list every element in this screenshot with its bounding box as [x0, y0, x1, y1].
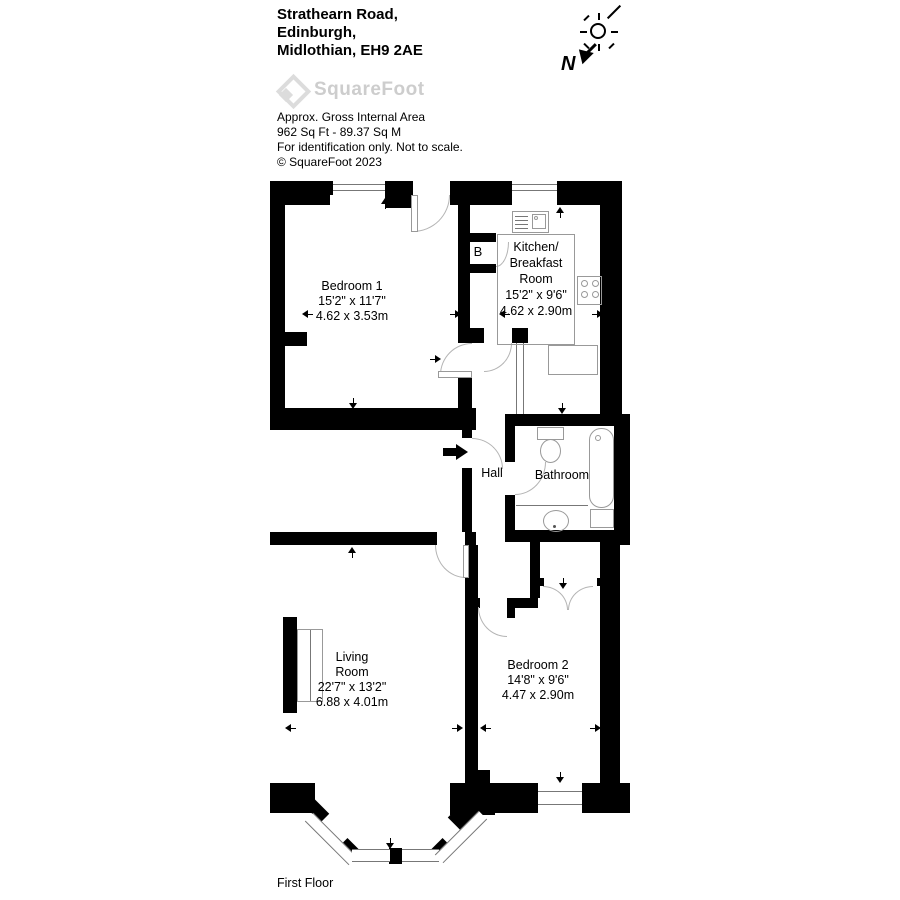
dimension-tick [559, 578, 569, 588]
wall-segment [465, 545, 478, 770]
tick-stem [486, 728, 491, 729]
room-label-kitchen: Kitchen/ Breakfast Room 15'2" x 9'6" 4.6… [491, 239, 581, 319]
room-label-living: Living Room 22'7" x 13'2" 6.88 x 4.01m [292, 650, 412, 710]
room-label-bathroom: Bathroom [522, 468, 602, 483]
kitchen-name-1: Kitchen/ [491, 239, 581, 255]
window-line [512, 190, 557, 191]
wall-segment [490, 783, 538, 813]
dimension-tick [480, 724, 490, 734]
door-leaf [438, 371, 472, 378]
floorplan-page: Strathearn Road, Edinburgh, Midlothian, … [0, 0, 900, 900]
dimension-tick [558, 403, 568, 413]
tick-triangle [559, 583, 567, 589]
tick-stem [560, 213, 561, 218]
hob-ring [581, 291, 588, 298]
bedroom2-dims-metric: 4.47 x 2.90m [478, 688, 598, 703]
bedroom2-dims-imperial: 14'8" x 9'6" [478, 673, 598, 688]
tick-stem [291, 728, 296, 729]
wall-segment [505, 426, 515, 462]
tick-stem [563, 578, 564, 583]
address-block: Strathearn Road, Edinburgh, Midlothian, … [277, 6, 423, 60]
tick-stem [353, 398, 354, 403]
tick-stem [352, 553, 353, 558]
tick-stem [385, 204, 386, 209]
compass-ray [607, 5, 621, 19]
sink-tap [534, 216, 538, 220]
wall-segment [538, 578, 544, 586]
room-label-bedroom1: Bedroom 1 15'2" x 11'7" 4.62 x 3.53m [292, 279, 412, 324]
wall-segment [507, 608, 515, 618]
tick-triangle [349, 403, 357, 409]
door-arc [472, 438, 503, 469]
window-line [523, 343, 524, 414]
hob-ring [581, 280, 588, 287]
kitchen-name-3: Room [491, 271, 581, 287]
tick-triangle [386, 843, 394, 849]
boiler-label: B [466, 244, 490, 259]
dimension-tick [450, 310, 460, 320]
door-leaf [411, 195, 418, 232]
kitchen-dims-imperial: 15'2" x 9'6" [491, 287, 581, 303]
window-opening [538, 784, 582, 812]
wall-segment [505, 530, 630, 542]
basin [543, 510, 569, 532]
living-dims-imperial: 22'7" x 13'2" [292, 680, 412, 695]
address-line-2: Edinburgh, [277, 24, 423, 42]
tick-triangle [435, 355, 441, 363]
door-arc [435, 545, 466, 578]
window-line [333, 184, 385, 185]
hall-name: Hall [462, 466, 522, 481]
tick-stem [560, 772, 561, 777]
window-opening [413, 181, 450, 195]
window-line [538, 804, 582, 805]
wall-segment [458, 328, 484, 343]
dimension-tick [285, 724, 295, 734]
wall-segment [462, 430, 472, 438]
wall-segment [530, 542, 540, 598]
dimension-tick [349, 398, 359, 408]
sink-drainer-line [515, 224, 528, 225]
bedroom1-dims-metric: 4.62 x 3.53m [292, 309, 412, 324]
tick-triangle [597, 310, 603, 318]
wall-segment [600, 195, 622, 414]
door-arc [543, 586, 568, 610]
window-line [516, 505, 588, 506]
wall-segment [614, 414, 630, 545]
tick-triangle [595, 724, 601, 732]
hob-ring [592, 291, 599, 298]
compass-ray [598, 44, 600, 51]
wall-segment [272, 332, 307, 346]
living-dims-metric: 6.88 x 4.01m [292, 695, 412, 710]
tick-triangle [457, 724, 463, 732]
wall-segment [389, 848, 402, 864]
dimension-tick [590, 724, 600, 734]
tick-stem [452, 728, 457, 729]
toilet-bowl [540, 439, 561, 463]
address-line-3: Midlothian, EH9 2AE [277, 42, 423, 60]
sink-drainer-line [515, 228, 528, 229]
compass-ray [598, 13, 600, 20]
living-name-1: Living [292, 650, 412, 665]
kitchen-dims-metric: 4.62 x 2.90m [491, 303, 581, 319]
compass-ray [611, 31, 618, 33]
squarefoot-logo-text: SquareFoot [314, 79, 425, 101]
wall-segment [462, 480, 472, 532]
door-arc [568, 586, 593, 610]
wall-segment [505, 495, 515, 530]
window-line [538, 791, 582, 792]
bedroom1-dims-imperial: 15'2" x 11'7" [292, 294, 412, 309]
tick-triangle [556, 777, 564, 783]
window-line [333, 190, 385, 191]
hob-ring [592, 280, 599, 287]
compass-sun-circle [590, 23, 606, 39]
entrance-arrow-shaft [443, 448, 457, 456]
room-label-hall: Hall [462, 466, 522, 481]
wall-segment [270, 532, 437, 545]
kitchen-worktop-outline [548, 345, 598, 375]
dimension-tick [556, 772, 566, 782]
wall-segment [465, 532, 476, 545]
north-label: N [561, 53, 575, 76]
sink-drainer-line [515, 220, 528, 221]
squarefoot-logo-icon [277, 76, 309, 108]
dimension-tick [430, 355, 440, 365]
room-label-bedroom2: Bedroom 2 14'8" x 9'6" 4.47 x 2.90m [478, 658, 598, 703]
address-line-1: Strathearn Road, [277, 6, 423, 24]
tick-stem [450, 314, 455, 315]
dimension-tick [452, 724, 462, 734]
bedroom1-name: Bedroom 1 [292, 279, 412, 294]
tick-stem [562, 403, 563, 408]
compass-ray [580, 31, 587, 33]
compass-ray [583, 15, 589, 21]
area-label: Approx. Gross Internal Area [277, 110, 463, 125]
wall-segment [270, 195, 285, 408]
tick-stem [590, 728, 595, 729]
info-block: Approx. Gross Internal Area 962 Sq Ft - … [277, 110, 463, 170]
bedroom2-name: Bedroom 2 [478, 658, 598, 673]
door-arc [413, 195, 450, 232]
door-leaf [463, 545, 469, 578]
window-line [512, 184, 557, 185]
tick-stem [390, 838, 391, 843]
tick-stem [430, 359, 435, 360]
dimension-tick [348, 547, 358, 557]
wall-segment [582, 783, 630, 813]
dimension-tick [556, 207, 566, 217]
door-arc [478, 607, 507, 637]
dimension-tick [381, 198, 391, 208]
copyright: © SquareFoot 2023 [277, 155, 463, 170]
wall-segment [505, 414, 630, 426]
bathroom-name: Bathroom [522, 468, 602, 483]
bath-tap [595, 435, 601, 441]
dimension-tick [386, 838, 396, 848]
wall-segment [600, 542, 620, 812]
tick-triangle [455, 310, 461, 318]
wall-segment [458, 375, 472, 408]
disclaimer: For identification only. Not to scale. [277, 140, 463, 155]
floor-label: First Floor [277, 876, 333, 890]
bath-shelf-outline [590, 509, 614, 528]
kitchen-name-2: Breakfast [491, 255, 581, 271]
sink-drainer-line [515, 216, 528, 217]
door-arc [484, 343, 512, 372]
entrance-arrow-head [456, 444, 468, 460]
tick-stem [592, 314, 597, 315]
bay-window [352, 849, 390, 862]
window-line [516, 343, 517, 414]
dimension-tick [592, 310, 602, 320]
basin-tap-dot [553, 525, 556, 528]
wall-segment [270, 408, 476, 430]
area-value: 962 Sq Ft - 89.37 Sq M [277, 125, 463, 140]
wall-segment [450, 195, 512, 205]
living-name-2: Room [292, 665, 412, 680]
bay-window [402, 849, 439, 862]
wall-segment [507, 598, 538, 608]
tick-triangle [558, 408, 566, 414]
compass-ray [608, 43, 614, 49]
